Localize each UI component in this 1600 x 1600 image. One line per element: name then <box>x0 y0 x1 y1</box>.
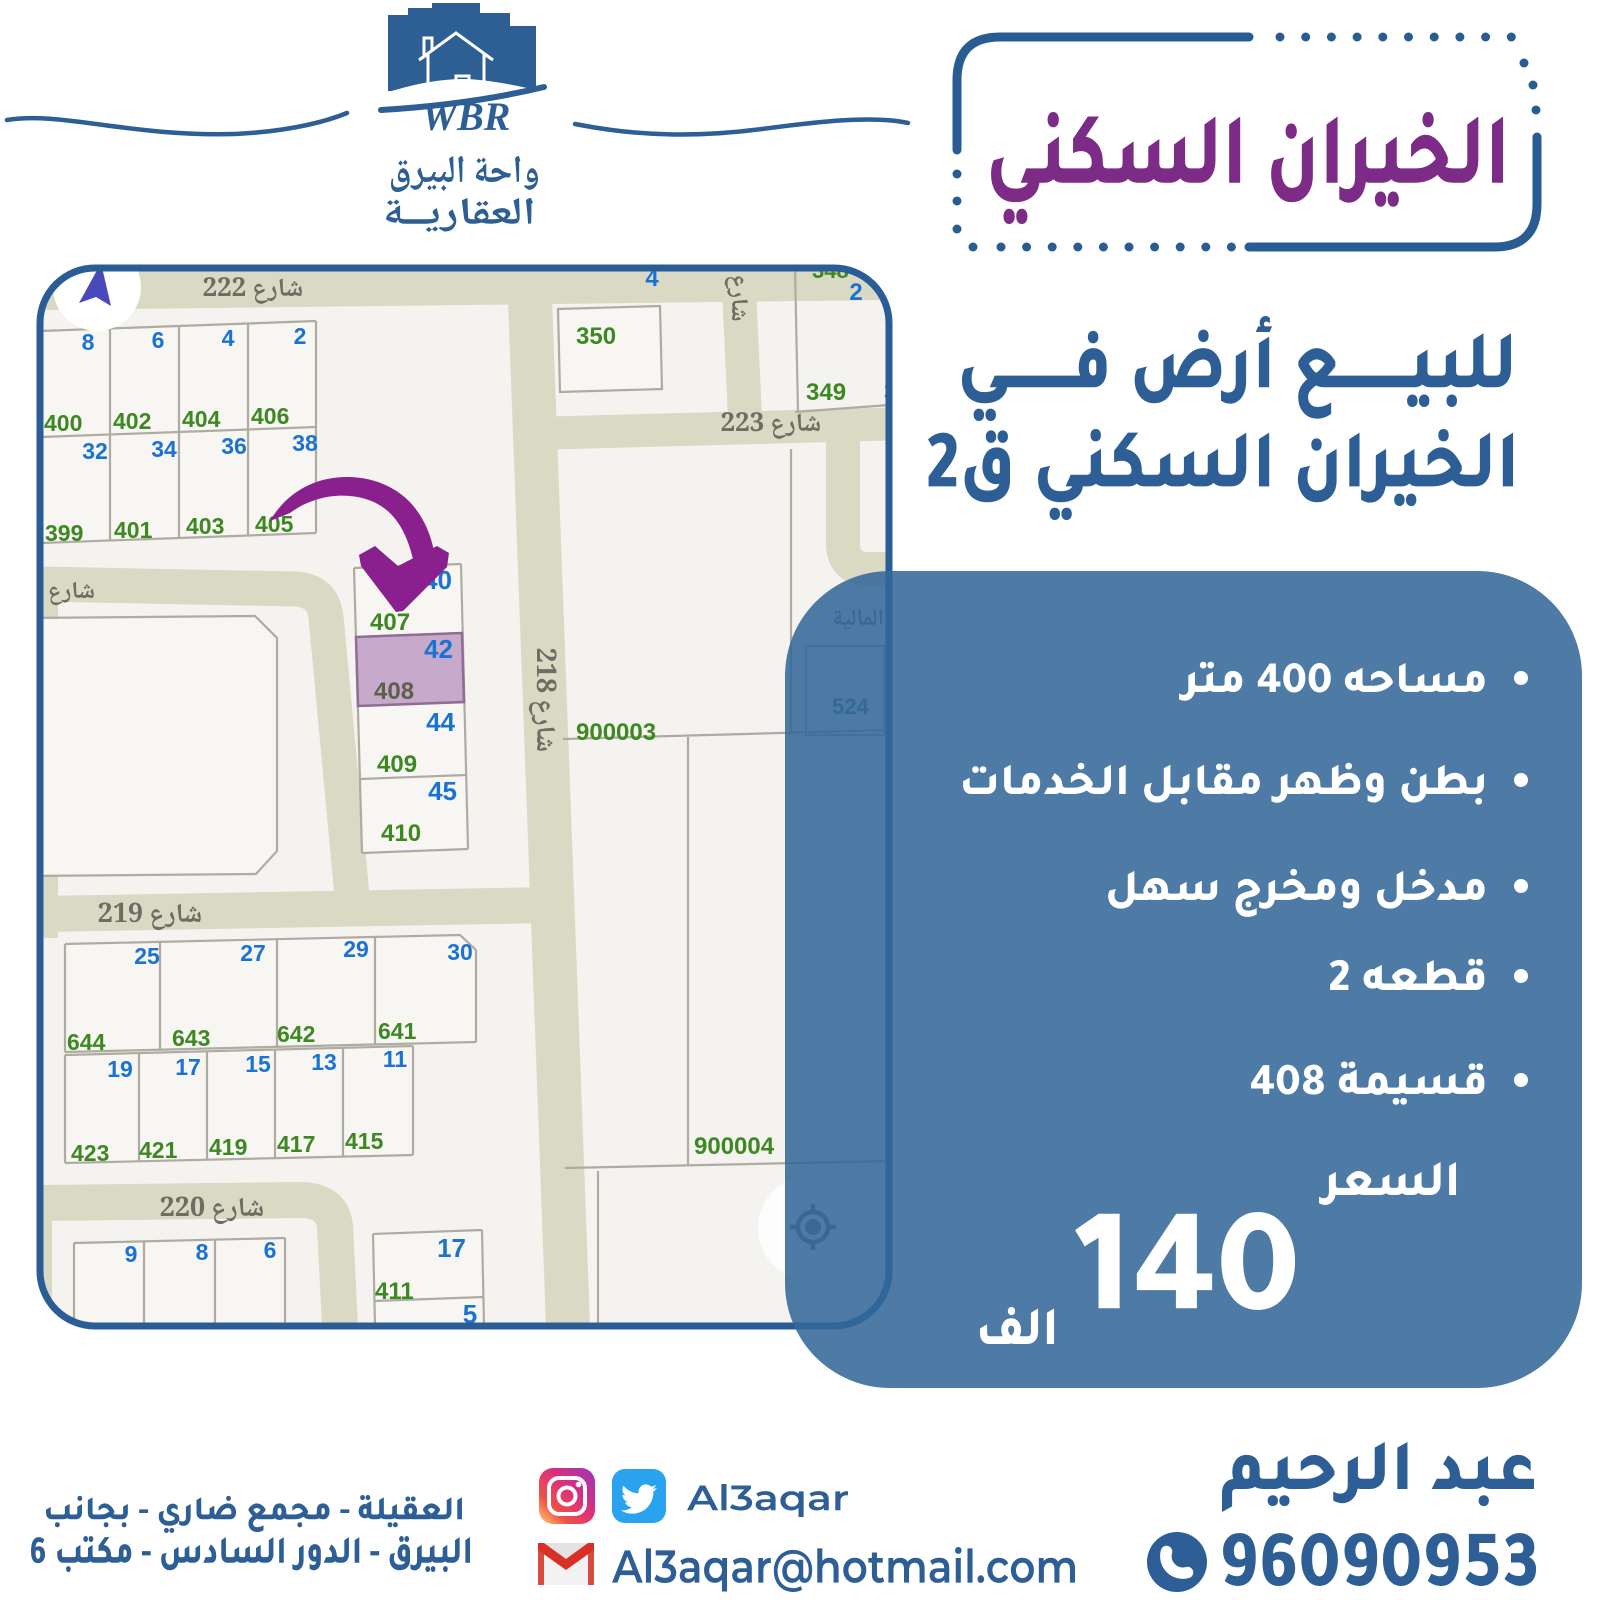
svg-text:45: 45 <box>428 776 457 806</box>
svg-text:417: 417 <box>277 1131 315 1157</box>
svg-text:27: 27 <box>240 940 266 966</box>
svg-text:11: 11 <box>383 1046 408 1072</box>
svg-text:643: 643 <box>172 1025 210 1051</box>
svg-text:6: 6 <box>264 1237 277 1263</box>
svg-text:642: 642 <box>277 1021 315 1047</box>
svg-text:8: 8 <box>82 329 95 355</box>
svg-text:15: 15 <box>245 1051 271 1077</box>
svg-text:349: 349 <box>806 379 846 406</box>
svg-text:WBR: WBR <box>422 94 511 139</box>
svg-text:406: 406 <box>251 403 289 429</box>
svg-text:350: 350 <box>576 323 616 350</box>
svg-text:29: 29 <box>343 936 369 962</box>
svg-text:404: 404 <box>182 406 221 432</box>
svg-text:409: 409 <box>377 751 417 778</box>
svg-text:900003: 900003 <box>576 719 656 746</box>
svg-text:17: 17 <box>175 1054 201 1080</box>
svg-text:401: 401 <box>114 517 153 543</box>
svg-text:900004: 900004 <box>694 1133 775 1160</box>
svg-text:423: 423 <box>71 1140 109 1166</box>
svg-text:411: 411 <box>375 1278 414 1305</box>
svg-text:4: 4 <box>222 325 235 351</box>
svg-text:42: 42 <box>424 634 453 664</box>
svg-text:403: 403 <box>186 513 224 539</box>
svg-text:38: 38 <box>292 430 318 456</box>
svg-text:8: 8 <box>196 1239 209 1265</box>
svg-text:400: 400 <box>44 410 82 436</box>
svg-text:408: 408 <box>374 678 414 705</box>
svg-text:44: 44 <box>426 707 455 737</box>
svg-text:9: 9 <box>125 1241 138 1267</box>
svg-text:2: 2 <box>849 279 862 306</box>
svg-text:410: 410 <box>381 820 421 847</box>
svg-text:13: 13 <box>311 1049 337 1075</box>
svg-text:415: 415 <box>345 1128 384 1154</box>
svg-text:641: 641 <box>378 1018 417 1044</box>
svg-text:419: 419 <box>209 1134 247 1160</box>
svg-text:407: 407 <box>370 609 410 636</box>
svg-text:19: 19 <box>107 1056 133 1082</box>
svg-text:644: 644 <box>67 1029 106 1055</box>
svg-text:32: 32 <box>82 438 108 464</box>
svg-text:36: 36 <box>221 433 247 459</box>
svg-text:17: 17 <box>437 1233 466 1263</box>
svg-text:2: 2 <box>294 323 307 349</box>
svg-text:34: 34 <box>151 436 177 462</box>
svg-text:30: 30 <box>447 939 473 965</box>
svg-text:399: 399 <box>45 520 83 546</box>
svg-text:6: 6 <box>152 327 165 353</box>
svg-text:402: 402 <box>113 408 151 434</box>
svg-text:421: 421 <box>139 1137 178 1163</box>
svg-text:25: 25 <box>134 943 160 969</box>
